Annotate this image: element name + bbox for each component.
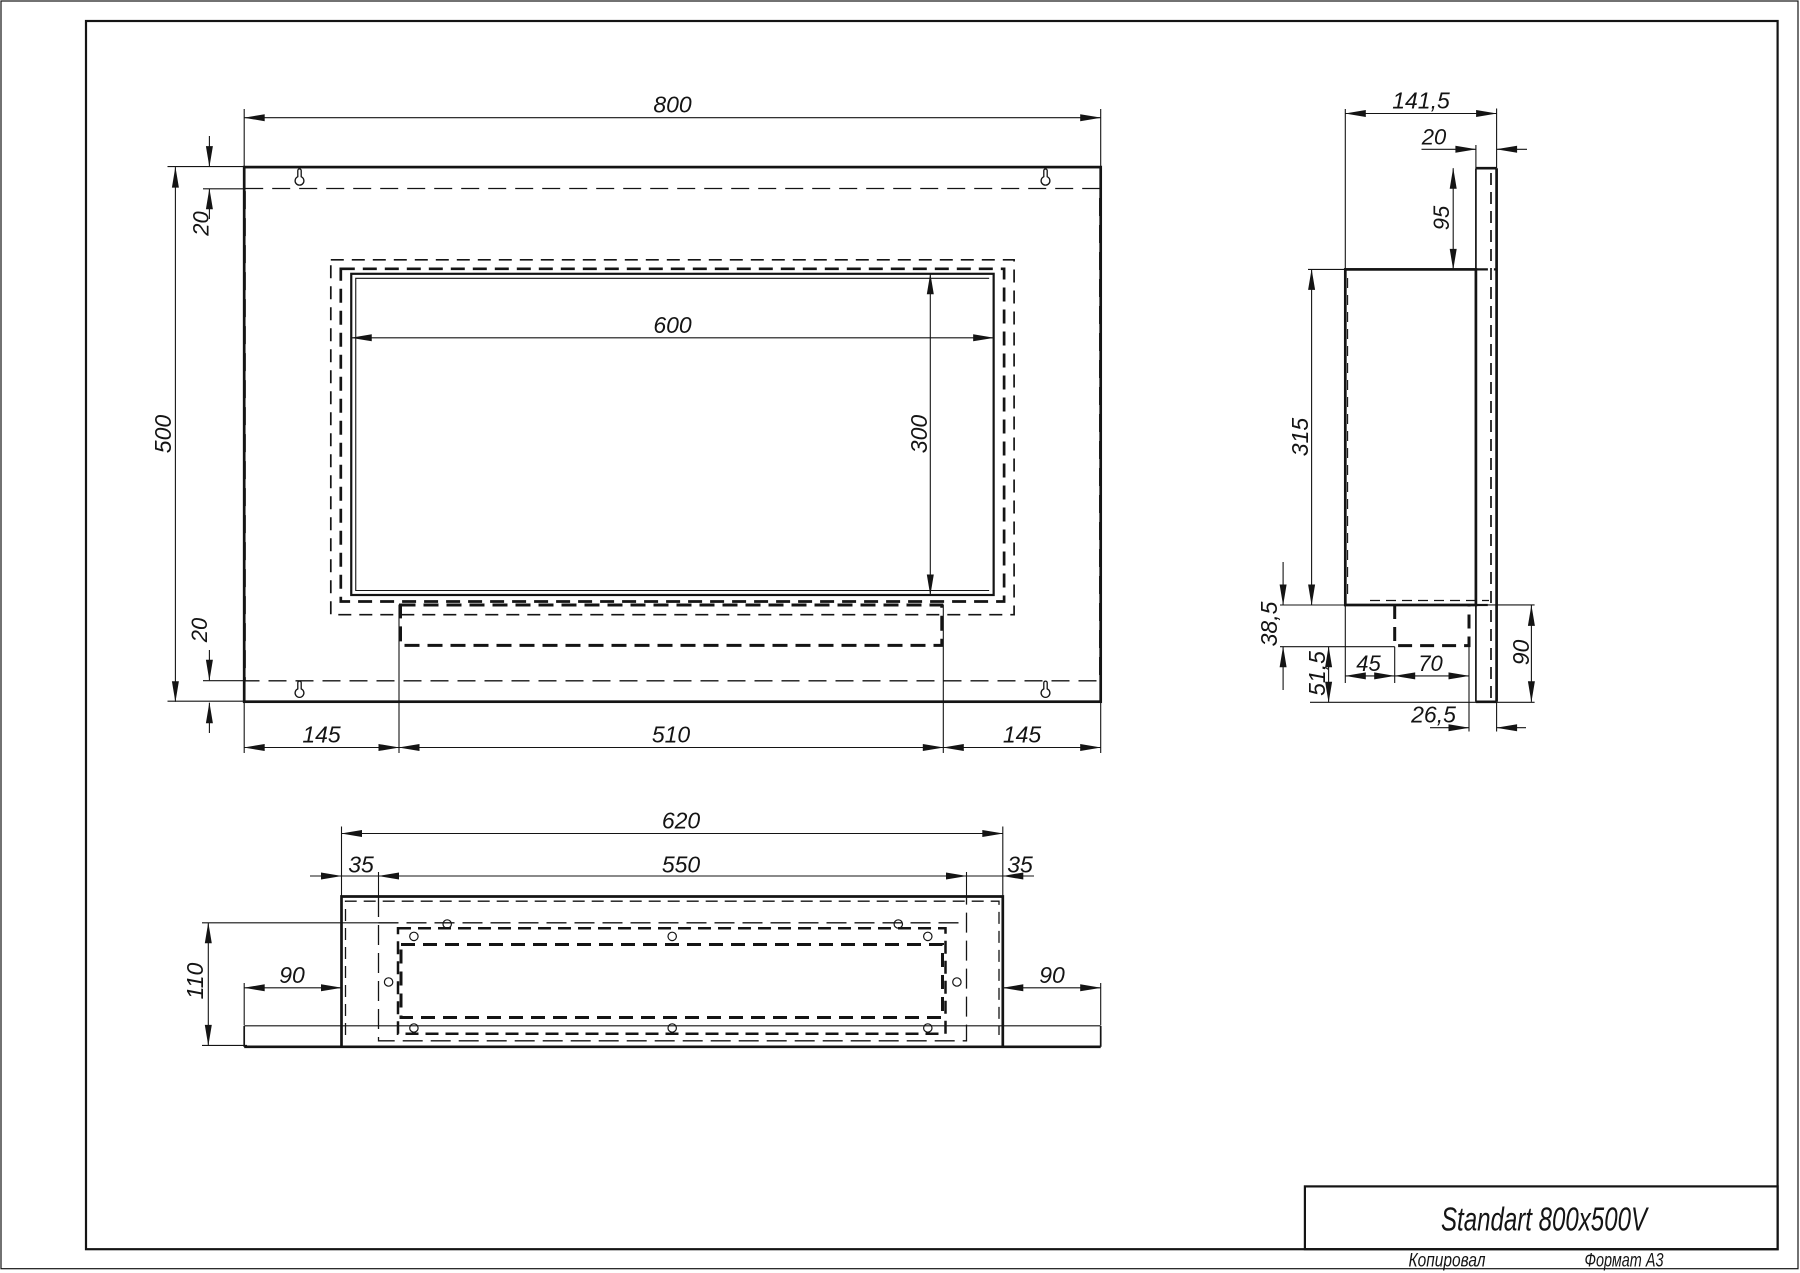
svg-text:Standart 800x500V: Standart 800x500V [1441,1201,1649,1238]
svg-text:141,5: 141,5 [1392,88,1450,114]
svg-text:90: 90 [279,962,305,988]
svg-text:45: 45 [1356,651,1381,676]
svg-text:500: 500 [150,415,176,454]
svg-text:20: 20 [1421,124,1447,149]
svg-text:90: 90 [1039,962,1065,988]
svg-text:Формат А3: Формат А3 [1585,1251,1664,1272]
svg-text:Копировал: Копировал [1409,1251,1486,1272]
svg-text:35: 35 [348,852,374,878]
svg-text:145: 145 [1003,722,1042,748]
svg-text:70: 70 [1418,651,1443,676]
svg-text:315: 315 [1287,418,1313,457]
svg-text:51,5: 51,5 [1304,651,1330,696]
svg-text:510: 510 [652,722,691,748]
svg-text:550: 550 [662,852,701,878]
svg-text:145: 145 [302,722,341,748]
svg-text:110: 110 [182,962,208,999]
svg-text:35: 35 [1007,852,1033,878]
svg-text:26,5: 26,5 [1410,702,1456,728]
svg-text:38,5: 38,5 [1256,601,1282,646]
svg-text:620: 620 [662,808,701,834]
svg-text:95: 95 [1429,205,1454,230]
svg-text:300: 300 [906,415,932,454]
svg-text:800: 800 [653,92,692,118]
svg-text:600: 600 [653,312,692,338]
svg-text:20: 20 [187,617,212,643]
svg-text:20: 20 [189,211,214,237]
svg-text:90: 90 [1508,640,1534,666]
